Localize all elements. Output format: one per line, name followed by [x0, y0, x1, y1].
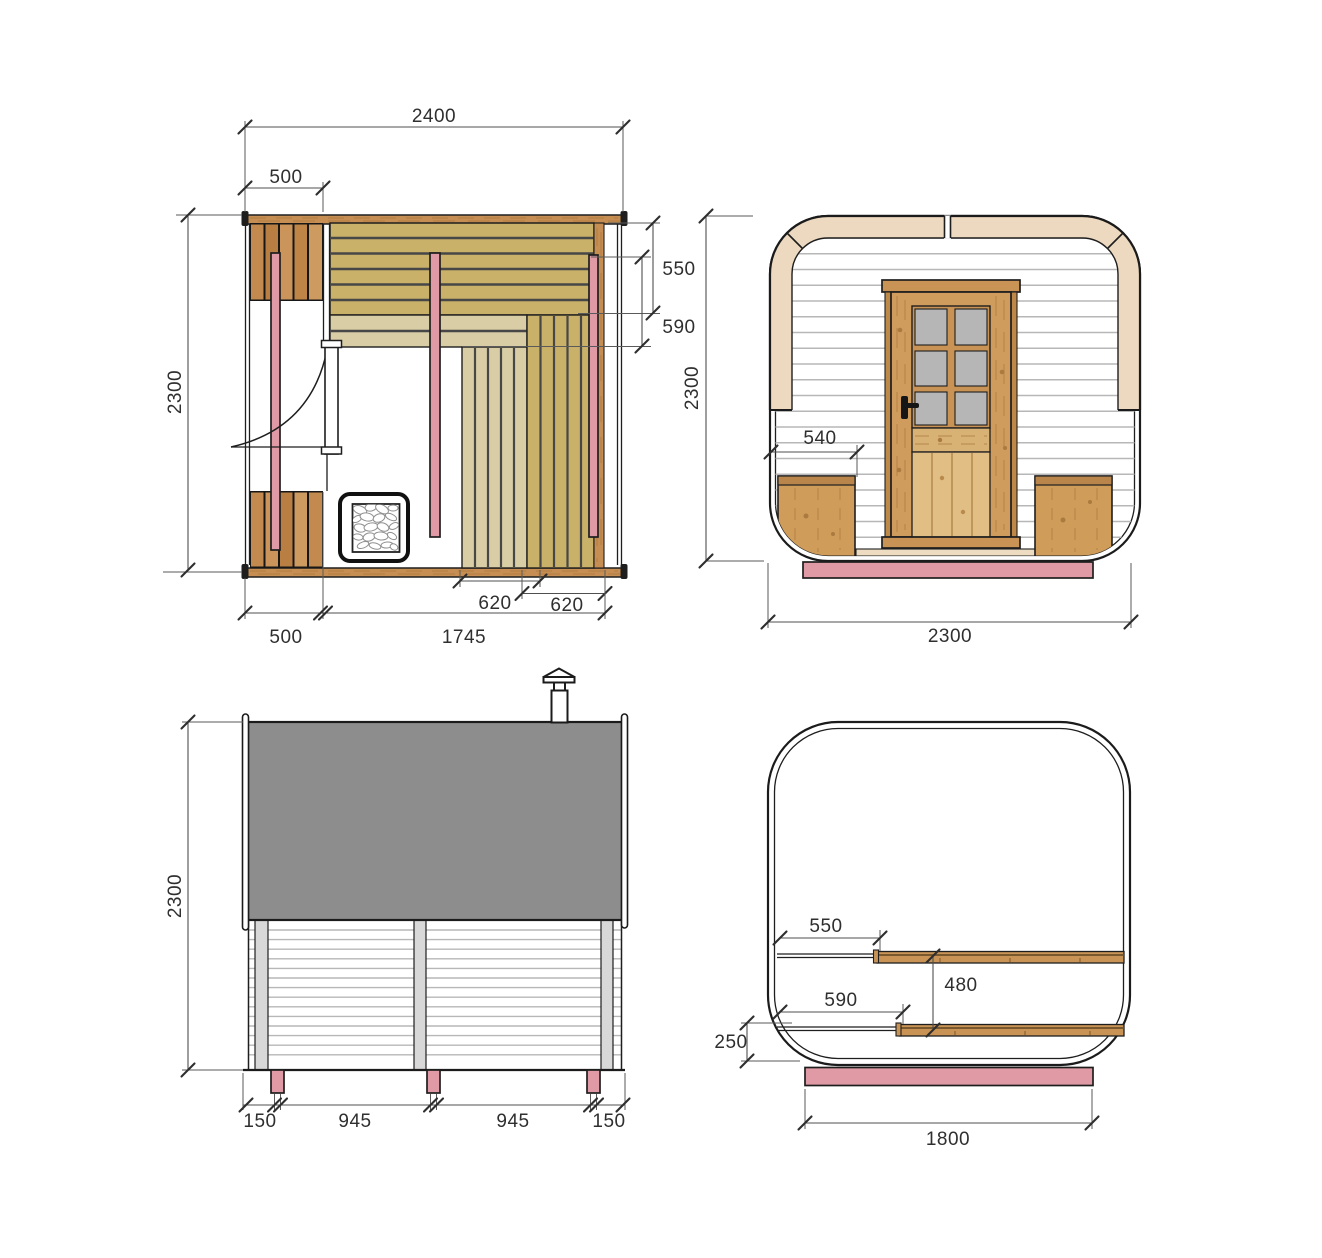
dim-label: 590: [662, 317, 695, 338]
floor-plan-view: [231, 211, 628, 579]
dim-label: 480: [944, 975, 977, 996]
door-leaf: [325, 343, 338, 454]
door-bottom-panel: [912, 452, 990, 537]
dim-label: 550: [809, 916, 842, 937]
side-siding: [249, 930, 621, 1055]
dim-label: 945: [496, 1111, 529, 1132]
door-window: [912, 306, 990, 428]
section-shell-outer: [768, 722, 1130, 1065]
plan-upper-bench: [330, 223, 594, 315]
dim-label: 2300: [682, 366, 703, 410]
support-strip: [430, 253, 440, 537]
side-roof-panel: [248, 722, 622, 920]
front-right-bench: [1035, 476, 1112, 558]
dim-label: 2300: [928, 626, 972, 647]
dim-label: 945: [338, 1111, 371, 1132]
dim-label: 540: [803, 428, 836, 449]
dim-label: 500: [269, 167, 302, 188]
dim-label: 150: [243, 1111, 276, 1132]
front-view: [770, 216, 1140, 579]
dim-label: 620: [478, 593, 511, 614]
door-sill: [882, 537, 1020, 548]
dim-label: 2300: [165, 874, 186, 918]
plan-upper-bench-vertical: [527, 315, 594, 568]
plan-lower-bench-vertical: [462, 347, 527, 568]
chimney: [544, 669, 575, 723]
dim-label: 2300: [165, 370, 186, 414]
dim-label: 550: [662, 259, 695, 280]
door-mid-board: [912, 428, 990, 452]
plan-lower-bench: [330, 315, 527, 347]
dim-label: 2400: [412, 106, 456, 127]
side-view: [243, 669, 628, 1094]
cross-section-view: [768, 722, 1130, 1086]
support-strip: [271, 253, 280, 550]
section-base-pad: [805, 1068, 1093, 1086]
door-lintel: [882, 280, 1020, 292]
dim-label: 1800: [926, 1129, 970, 1150]
drawing-sheet: 2400500550590620620500174523002300540230…: [0, 0, 1322, 1258]
plan-right-wall: [618, 224, 622, 565]
plan-left-wall: [246, 224, 250, 565]
porch-deck-slats: [250, 223, 323, 568]
side-corner-board-right: [622, 714, 628, 928]
dim-label: 590: [824, 990, 857, 1011]
heater: [340, 494, 408, 561]
side-corner-board-left: [243, 714, 249, 930]
plan-door: [231, 341, 342, 455]
dim-label: 500: [269, 627, 302, 648]
front-base-pad: [803, 562, 1093, 578]
side-posts: [255, 920, 613, 1070]
side-feet: [271, 1070, 600, 1093]
dim-label: 1745: [442, 627, 486, 648]
stove-stones: [351, 502, 400, 552]
front-door: [882, 280, 1020, 548]
dim-label: 250: [714, 1032, 747, 1053]
dim-label: 150: [592, 1111, 625, 1132]
plan-bottom-wall: [245, 568, 623, 577]
support-strip: [589, 255, 598, 537]
